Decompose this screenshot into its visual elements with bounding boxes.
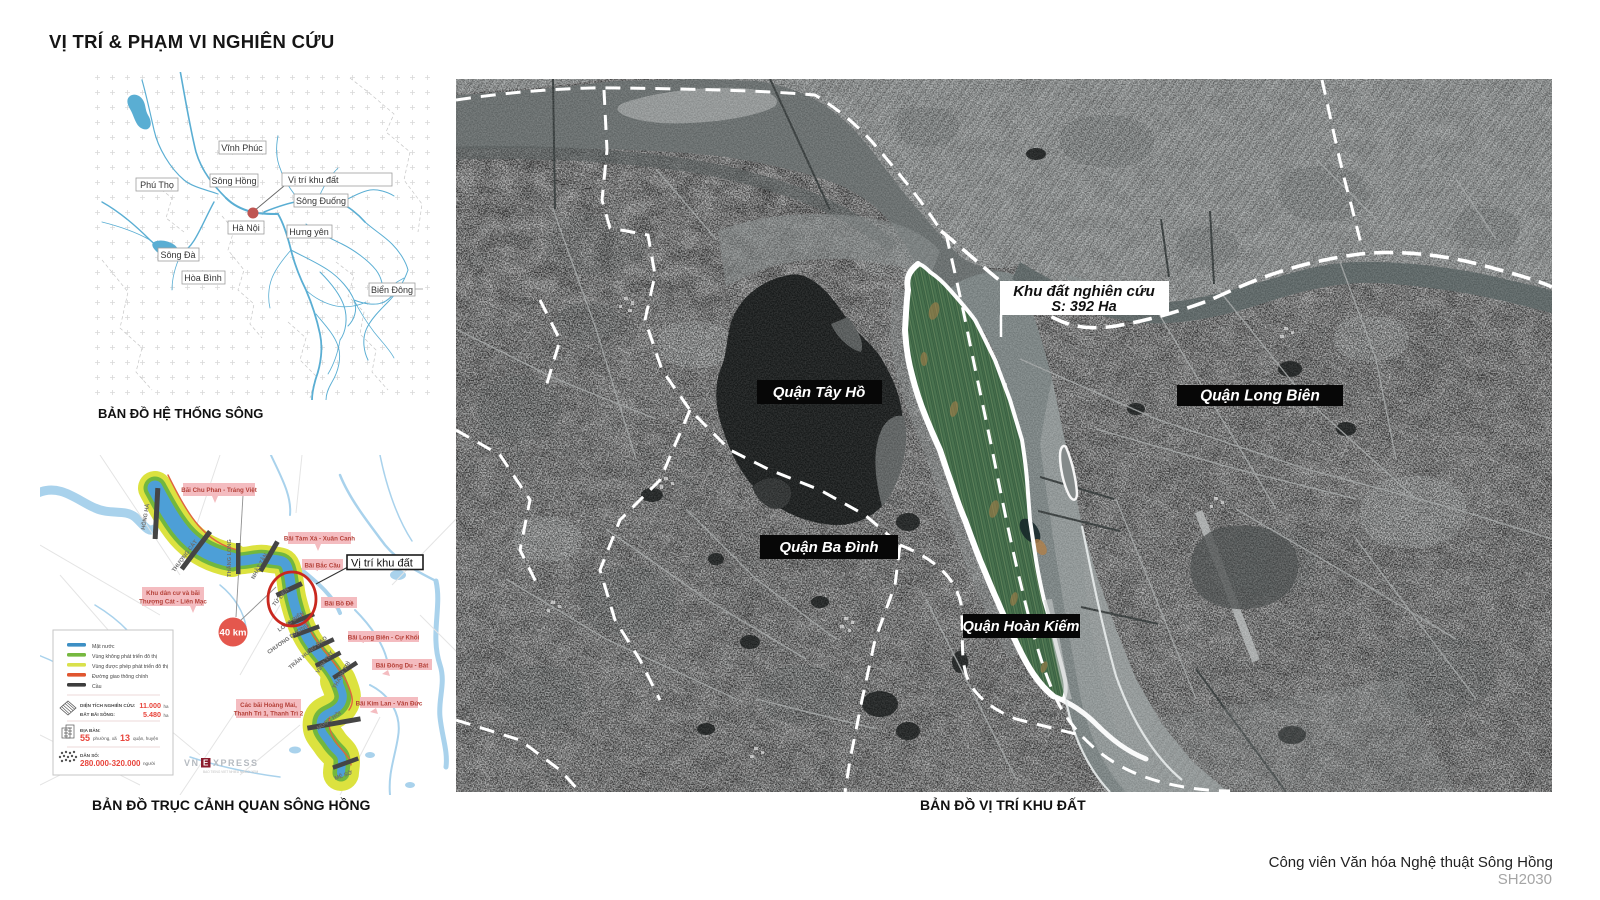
svg-text:Bãi Bắc Cầu: Bãi Bắc Cầu: [304, 563, 340, 570]
svg-text:THĂNG LONG: THĂNG LONG: [226, 539, 233, 577]
svg-text:Hà Nội: Hà Nội: [232, 223, 260, 233]
svg-text:XPRESS: XPRESS: [213, 758, 259, 768]
svg-text:Hưng yên: Hưng yên: [289, 227, 329, 237]
svg-text:người: người: [143, 761, 155, 766]
svg-text:Vùng được phép phát triển đô t: Vùng được phép phát triển đô thị: [92, 663, 168, 670]
svg-text:Quận Tây Hồ: Quận Tây Hồ: [773, 384, 866, 401]
svg-text:Quận Hoàn Kiếm: Quận Hoàn Kiếm: [963, 619, 1080, 635]
svg-text:BAO TIENG VIET NHIEU NGUOI XEM: BAO TIENG VIET NHIEU NGUOI XEM: [203, 770, 258, 774]
svg-text:Bãi Bồ Đề: Bãi Bồ Đề: [324, 601, 354, 608]
svg-text:13: 13: [120, 733, 130, 743]
svg-text:Vĩnh Phúc: Vĩnh Phúc: [221, 143, 263, 153]
svg-text:ha: ha: [164, 713, 170, 718]
svg-text:Các bãi Hoàng Mai,: Các bãi Hoàng Mai,: [240, 702, 297, 709]
svg-text:Khu đất nghiên cứu: Khu đất nghiên cứu: [1013, 283, 1155, 300]
svg-text:Bãi Chu Phan - Tráng Việt: Bãi Chu Phan - Tráng Việt: [181, 487, 257, 494]
svg-text:Bãi Tàm Xá - Xuân Canh: Bãi Tàm Xá - Xuân Canh: [284, 536, 355, 543]
svg-text:40 km: 40 km: [220, 628, 247, 639]
svg-text:phường, xã: phường, xã: [93, 736, 117, 741]
svg-text:Vùng không phát triển đô thị: Vùng không phát triển đô thị: [92, 653, 157, 660]
svg-text:Biển Đông: Biển Đông: [371, 285, 413, 295]
svg-text:Đường giao thông chính: Đường giao thông chính: [92, 674, 148, 680]
svg-text:Bãi Long Biên - Cự Khối: Bãi Long Biên - Cự Khối: [348, 635, 420, 642]
svg-text:Cầu: Cầu: [92, 684, 102, 690]
svg-text:S: 392 Ha: S: 392 Ha: [1051, 299, 1116, 315]
svg-text:Hòa Bình: Hòa Bình: [184, 273, 222, 283]
svg-text:Khu dân cư và bãi: Khu dân cư và bãi: [146, 590, 200, 597]
svg-text:Quận Ba Đình: Quận Ba Đình: [779, 539, 878, 556]
svg-text:Bãi Đông Du - Bát: Bãi Đông Du - Bát: [376, 663, 429, 670]
svg-text:DIỆN TÍCH NGHIÊN CỨU:: DIỆN TÍCH NGHIÊN CỨU:: [80, 701, 136, 708]
svg-text:Phú Thọ: Phú Thọ: [140, 180, 174, 190]
svg-text:Bãi Kim Lan - Văn Đức: Bãi Kim Lan - Văn Đức: [356, 701, 423, 708]
svg-text:55: 55: [80, 733, 90, 743]
svg-text:Vị trí khu đất: Vị trí khu đất: [351, 558, 413, 570]
svg-text:Sông Hồng: Sông Hồng: [211, 176, 256, 186]
svg-text:ha: ha: [164, 704, 170, 709]
svg-text:DÂN SỐ:: DÂN SỐ:: [80, 752, 100, 758]
svg-text:Sông Đuống: Sông Đuống: [296, 196, 346, 206]
svg-text:5.480: 5.480: [143, 710, 161, 719]
svg-text:VN: VN: [184, 758, 200, 768]
svg-text:11.000: 11.000: [139, 701, 161, 710]
svg-text:Quận Long Biên: Quận Long Biên: [1200, 388, 1320, 405]
svg-text:Sông Đà: Sông Đà: [160, 250, 195, 260]
svg-text:ĐẤT BÃI SÔNG:: ĐẤT BÃI SÔNG:: [80, 710, 115, 717]
svg-text:quận, huyện: quận, huyện: [133, 736, 159, 741]
svg-text:280.000-320.000: 280.000-320.000: [80, 759, 141, 768]
svg-text:Thanh Trì 1, Thanh Trì 2: Thanh Trì 1, Thanh Trì 2: [234, 711, 304, 718]
svg-text:E: E: [203, 759, 209, 768]
svg-text:Mặt nước: Mặt nước: [92, 644, 115, 650]
svg-text:Vị trí khu đất: Vị trí khu đất: [288, 175, 339, 185]
svg-text:Thượng Cát - Liên Mạc: Thượng Cát - Liên Mạc: [139, 599, 207, 606]
